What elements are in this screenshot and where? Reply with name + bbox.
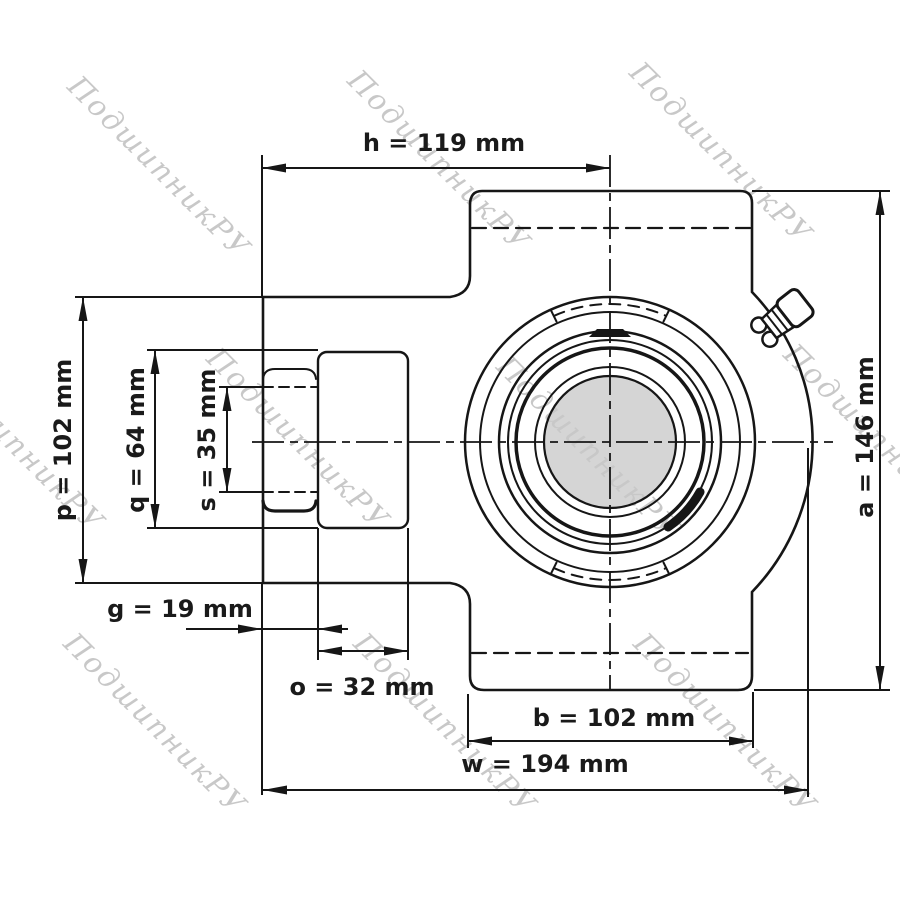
arrowhead [318,647,342,656]
arrowhead [318,625,342,634]
dim-label-w: w = 194 mm [461,750,628,778]
arrowhead [876,191,885,215]
arrowhead [223,468,232,492]
arrowhead [151,350,160,374]
watermark: ПодшипникРУ [340,62,537,259]
arrowhead [262,164,286,173]
arrowhead [79,559,88,583]
dim-label-b: b = 102 mm [533,704,695,732]
arrowhead [79,297,88,321]
part-outlines [263,191,813,690]
dim-label-s: s = 35 mm [193,369,221,512]
housing-outline [263,191,813,690]
watermark: ПодшипникРУ [622,54,819,251]
dim-label-a: a = 146 mm [851,356,879,517]
arrowhead [876,666,885,690]
watermark: ПодшипникРУ [56,625,253,822]
dim-label-o: o = 32 mm [289,673,434,701]
arrowhead [263,786,287,795]
arrowhead [586,164,610,173]
drawing-canvas: ПодшипникРУ ПодшипникРУ ПодшипникРУ Подш… [0,0,900,900]
dim-label-h: h = 119 mm [363,129,525,157]
arrowhead [151,504,160,528]
watermark: ПодшипникРУ [776,336,900,533]
dim-label-p: p = 102 mm [49,359,77,521]
rail-groove-bottom [263,501,316,511]
arrowhead [238,625,262,634]
dim-label-g: g = 19 mm [107,595,253,623]
watermark: ПодшипникРУ [60,68,257,265]
dim-label-q: q = 64 mm [122,367,150,513]
watermark: ПодшипникРУ [346,625,543,822]
rail-groove-top [263,369,316,379]
bearing-unit-drawing: ПодшипникРУ ПодшипникРУ ПодшипникРУ Подш… [0,0,900,900]
